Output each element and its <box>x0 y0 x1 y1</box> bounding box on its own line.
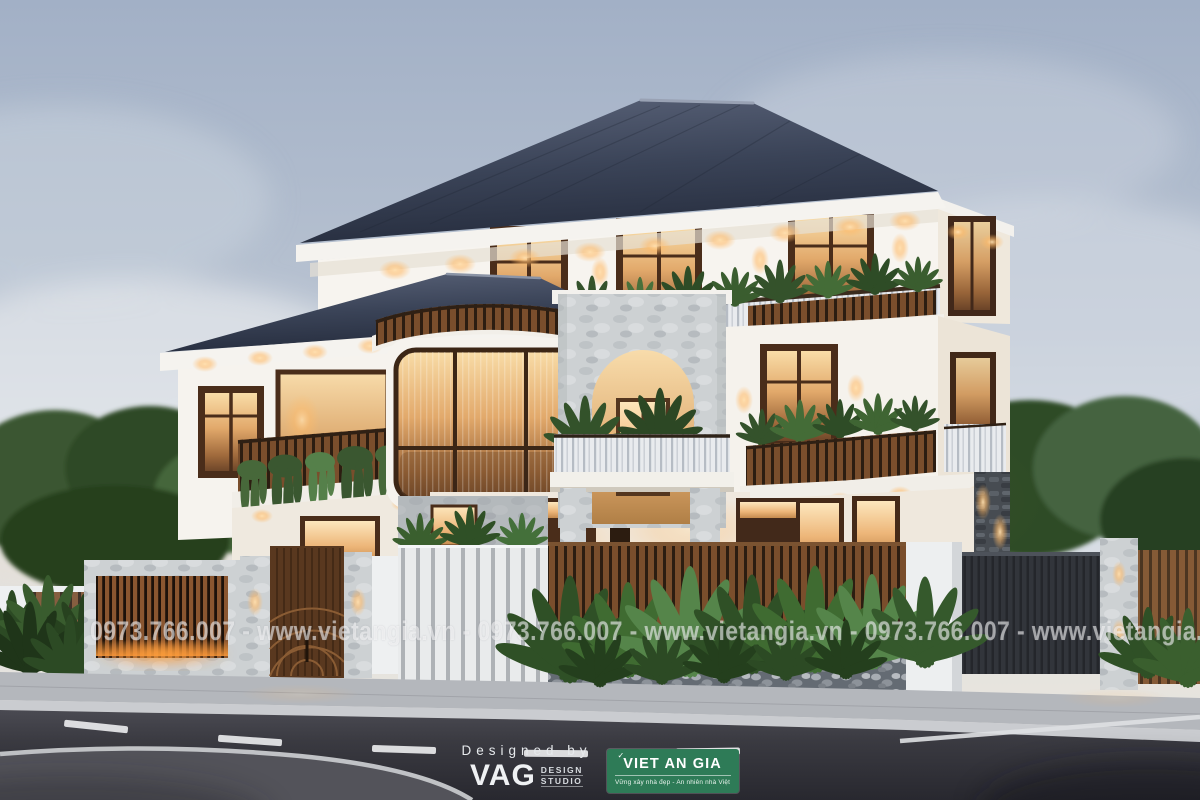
vag-studio-logo: Designed by VAG DESIGN STUDIO <box>461 744 591 794</box>
vietangia-logo-box: ✓ VIET AN GIA Vững xây nhà đẹp - An nhiê… <box>607 749 739 793</box>
designed-by-label: Designed by <box>461 744 591 758</box>
company-tagline: Vững xây nhà đẹp - An nhiên nhà Việt <box>612 778 734 788</box>
gate-pier <box>240 556 270 684</box>
driveway-gate <box>962 552 1100 674</box>
studio-word-studio: STUDIO <box>541 776 583 787</box>
wall-sconce-light <box>735 386 753 414</box>
wall-sconce-light <box>847 374 865 402</box>
vag-acronym: VAG <box>470 761 536 791</box>
white-batten-fence <box>398 545 548 688</box>
logo-check-icon: ✓ <box>618 751 625 760</box>
scene-illustration <box>0 0 1200 800</box>
company-name: VIET AN GIA <box>612 756 734 773</box>
side-balusters <box>944 424 1006 472</box>
footer-branding: Designed by VAG DESIGN STUDIO ✓ VIET AN … <box>0 744 1200 794</box>
architectural-render: 0973.766.007 - www.vietangia.vn - 0973.7… <box>0 0 1200 800</box>
backlit-slat-screen <box>84 560 240 694</box>
logo-divider <box>615 775 731 776</box>
entry-gate <box>270 546 344 678</box>
studio-word-design: DESIGN <box>541 765 583 776</box>
